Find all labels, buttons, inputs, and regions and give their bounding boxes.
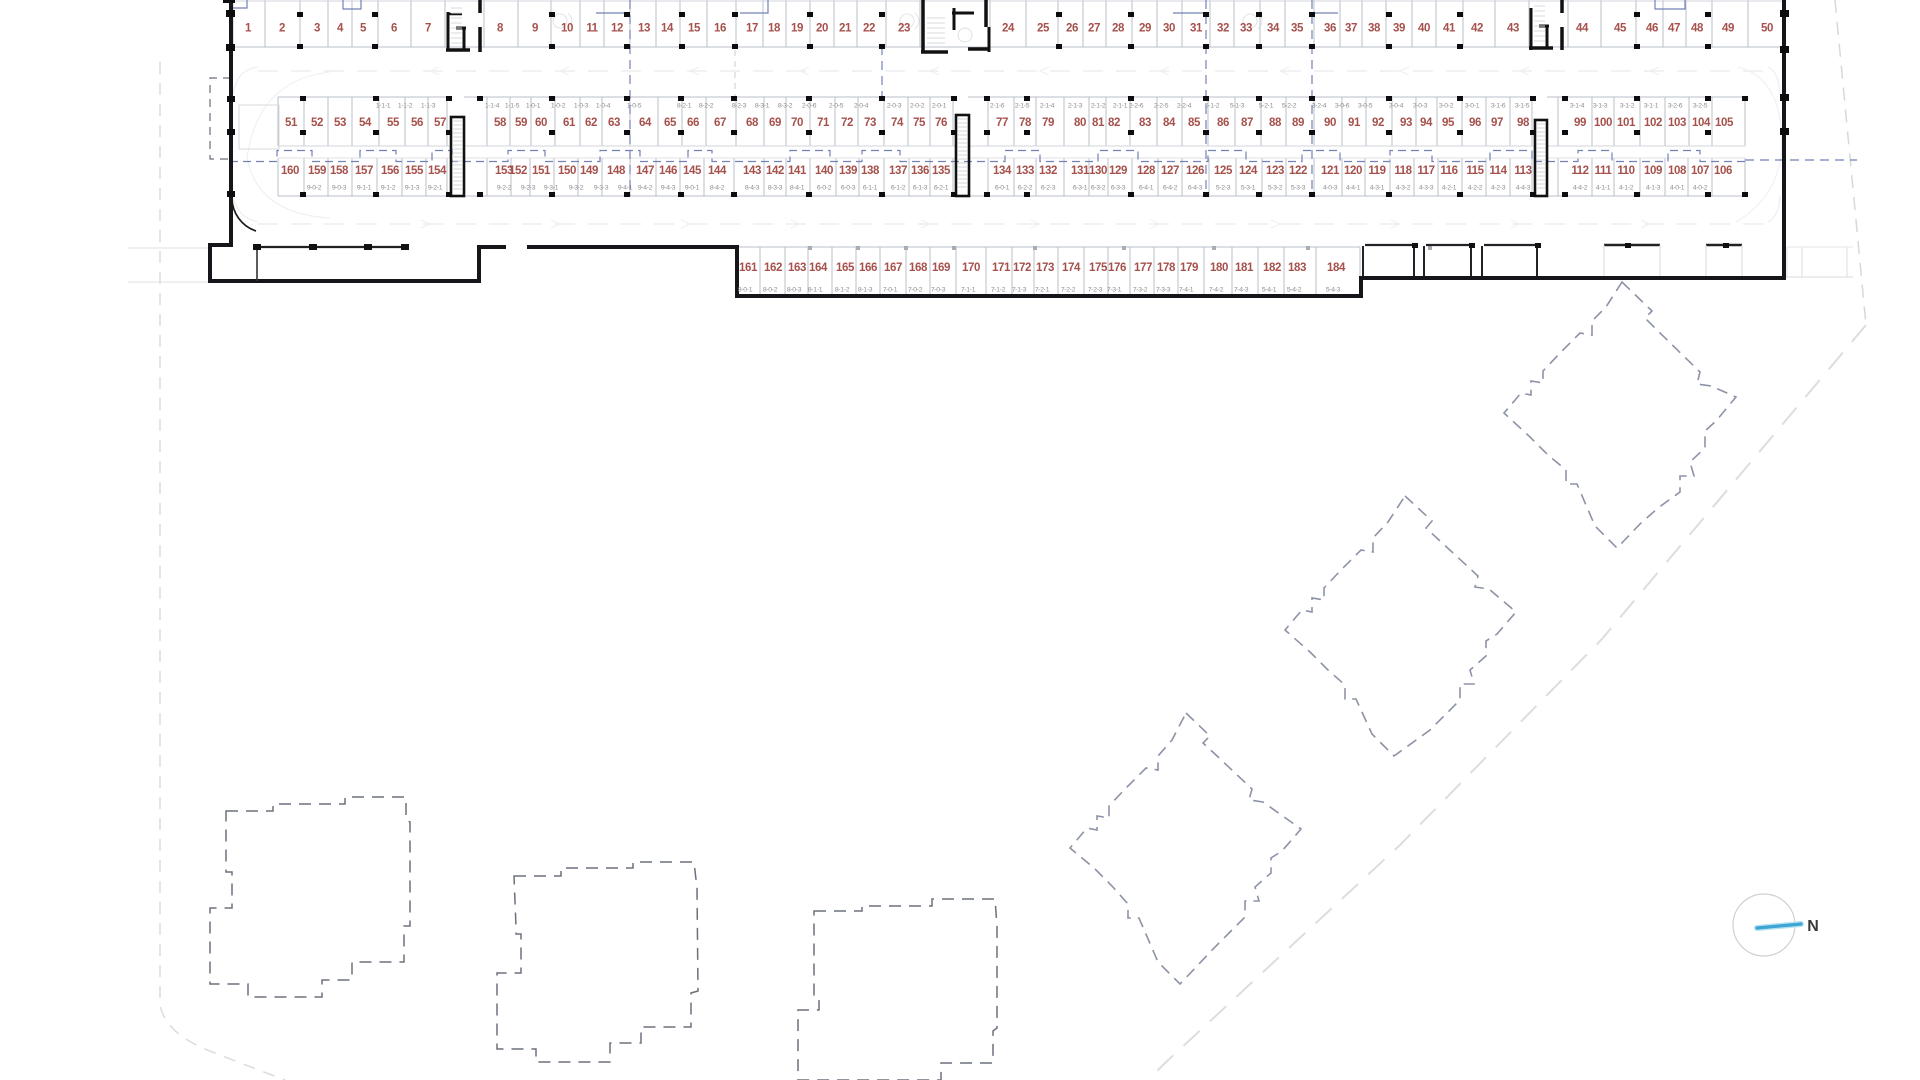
svg-text:2-0-4: 2-0-4 [854,103,869,110]
svg-text:122: 122 [1289,165,1307,177]
svg-text:2-1-1: 2-1-1 [1113,103,1128,110]
svg-text:172: 172 [1013,262,1031,274]
svg-text:91: 91 [1348,117,1361,129]
svg-text:23: 23 [898,23,910,35]
svg-text:181: 181 [1235,262,1254,274]
svg-text:2-2-6: 2-2-6 [1129,103,1144,110]
svg-text:3-2-4: 3-2-4 [1312,103,1327,110]
svg-text:3-1-6: 3-1-6 [1491,103,1506,110]
svg-text:6-1-3: 6-1-3 [913,185,928,192]
svg-text:8-2-3: 8-2-3 [732,103,747,110]
svg-text:10: 10 [561,23,573,35]
svg-text:8-3-1: 8-3-1 [755,103,770,110]
svg-text:115: 115 [1466,165,1484,177]
svg-text:183: 183 [1288,262,1306,274]
svg-text:145: 145 [683,165,702,177]
svg-text:8-0-1: 8-0-1 [738,287,753,294]
svg-text:1-1-4: 1-1-4 [485,103,500,110]
svg-text:108: 108 [1668,165,1687,177]
svg-text:57: 57 [434,117,446,129]
svg-text:4-3-3: 4-3-3 [1419,185,1434,192]
svg-text:9-0-2: 9-0-2 [307,185,322,192]
svg-text:147: 147 [636,165,654,177]
svg-text:6-0-3: 6-0-3 [841,185,856,192]
svg-text:N: N [1807,918,1819,935]
svg-text:120: 120 [1344,165,1362,177]
svg-text:170: 170 [962,262,980,274]
svg-text:50: 50 [1761,23,1773,35]
svg-text:158: 158 [330,165,349,177]
svg-text:6-2-1: 6-2-1 [934,185,949,192]
svg-text:8-3-3: 8-3-3 [768,185,783,192]
svg-text:131: 131 [1071,165,1090,177]
svg-text:37: 37 [1345,23,1357,35]
svg-text:9-3-1: 9-3-1 [544,185,559,192]
svg-text:103: 103 [1668,117,1686,129]
svg-text:6-3-1: 6-3-1 [1073,185,1088,192]
svg-text:67: 67 [714,117,726,129]
svg-text:94: 94 [1420,117,1433,129]
svg-text:19: 19 [791,23,803,35]
svg-text:144: 144 [708,165,727,177]
svg-text:3-0-4: 3-0-4 [1389,103,1404,110]
svg-text:3-1-4: 3-1-4 [1570,103,1585,110]
svg-text:160: 160 [281,165,299,177]
svg-text:4-1-1: 4-1-1 [1596,185,1611,192]
svg-text:1-1-1: 1-1-1 [376,103,391,110]
svg-text:28: 28 [1112,23,1125,35]
svg-text:173: 173 [1036,262,1054,274]
svg-text:3-0-2: 3-0-2 [1439,103,1454,110]
svg-text:2-0-3: 2-0-3 [887,103,902,110]
svg-text:73: 73 [864,117,876,129]
svg-text:7-3-1: 7-3-1 [1107,287,1122,294]
svg-text:69: 69 [769,117,781,129]
svg-text:7-1-2: 7-1-2 [991,287,1006,294]
svg-text:71: 71 [817,117,830,129]
svg-text:6-1-1: 6-1-1 [863,185,878,192]
svg-text:1-1-2: 1-1-2 [398,103,413,110]
svg-text:8-4-3: 8-4-3 [745,185,760,192]
svg-text:68: 68 [746,117,759,129]
svg-text:104: 104 [1692,117,1711,129]
svg-text:66: 66 [687,117,699,129]
svg-text:1-0-5: 1-0-5 [627,103,642,110]
svg-text:1-0-3: 1-0-3 [574,103,589,110]
svg-text:64: 64 [639,117,652,129]
svg-text:89: 89 [1292,117,1304,129]
svg-text:48: 48 [1691,23,1704,35]
svg-text:7-3-2: 7-3-2 [1133,287,1148,294]
svg-text:4-0-3: 4-0-3 [1323,185,1338,192]
svg-text:5-4-2: 5-4-2 [1287,287,1302,294]
svg-text:182: 182 [1263,262,1281,274]
svg-text:12: 12 [611,23,623,35]
svg-text:7-1-1: 7-1-1 [961,287,976,294]
svg-text:9-1-1: 9-1-1 [357,185,372,192]
svg-text:7: 7 [425,23,431,35]
svg-text:148: 148 [607,165,626,177]
svg-text:5-3-1: 5-3-1 [1241,185,1256,192]
svg-text:3-2-6: 3-2-6 [1668,103,1683,110]
svg-text:8-1-1: 8-1-1 [808,287,823,294]
svg-text:4-1-3: 4-1-3 [1646,185,1661,192]
svg-text:5-3-3: 5-3-3 [1291,185,1306,192]
svg-text:20: 20 [816,23,828,35]
svg-text:184: 184 [1327,262,1346,274]
svg-text:87: 87 [1241,117,1253,129]
svg-text:63: 63 [608,117,620,129]
svg-text:22: 22 [863,23,875,35]
svg-text:9-3-2: 9-3-2 [569,185,584,192]
svg-text:9: 9 [532,23,538,35]
svg-text:4-2-3: 4-2-3 [1491,185,1506,192]
svg-text:141: 141 [788,165,807,177]
svg-text:171: 171 [992,262,1011,274]
svg-text:111: 111 [1595,165,1613,177]
svg-text:3-0-3: 3-0-3 [1413,103,1428,110]
svg-text:5-4-3: 5-4-3 [1326,287,1341,294]
svg-text:140: 140 [815,165,833,177]
svg-text:167: 167 [884,262,902,274]
svg-text:7-3-3: 7-3-3 [1156,287,1171,294]
svg-text:8: 8 [497,23,504,35]
svg-text:174: 174 [1062,262,1081,274]
svg-text:4-2-1: 4-2-1 [1442,185,1457,192]
svg-text:146: 146 [659,165,677,177]
svg-text:86: 86 [1217,117,1229,129]
svg-text:26: 26 [1066,23,1078,35]
svg-text:4-2-2: 4-2-2 [1468,185,1483,192]
svg-text:1-1-3: 1-1-3 [421,103,436,110]
svg-text:3-0-6: 3-0-6 [1335,103,1350,110]
svg-text:133: 133 [1016,165,1034,177]
svg-text:132: 132 [1039,165,1057,177]
svg-text:4-3-1: 4-3-1 [1370,185,1385,192]
svg-text:53: 53 [334,117,346,129]
svg-text:7-2-2: 7-2-2 [1061,287,1076,294]
svg-text:138: 138 [861,165,880,177]
svg-text:116: 116 [1440,165,1457,177]
svg-text:142: 142 [766,165,784,177]
svg-text:2: 2 [279,23,285,35]
svg-text:2-0-1: 2-0-1 [932,103,947,110]
svg-text:59: 59 [515,117,527,129]
svg-text:5-3-2: 5-3-2 [1268,185,1283,192]
svg-text:49: 49 [1722,23,1734,35]
svg-text:119: 119 [1368,165,1385,177]
svg-text:136: 136 [911,165,929,177]
svg-text:55: 55 [387,117,400,129]
svg-text:126: 126 [1186,165,1204,177]
svg-text:40: 40 [1418,23,1430,35]
svg-text:164: 164 [809,262,828,274]
svg-text:6-4-3: 6-4-3 [1188,185,1203,192]
svg-text:9-4-3: 9-4-3 [661,185,676,192]
svg-text:25: 25 [1037,23,1050,35]
svg-text:125: 125 [1214,165,1233,177]
svg-text:121: 121 [1321,165,1340,177]
svg-text:3-1-2: 3-1-2 [1620,103,1635,110]
svg-text:2-1-4: 2-1-4 [1040,103,1055,110]
svg-text:82: 82 [1108,117,1120,129]
svg-text:9-4-1: 9-4-1 [618,185,633,192]
svg-text:46: 46 [1646,23,1658,35]
svg-text:80: 80 [1074,117,1086,129]
svg-text:100: 100 [1594,117,1612,129]
svg-text:137: 137 [889,165,907,177]
svg-text:9-0-3: 9-0-3 [332,185,347,192]
svg-text:58: 58 [494,117,507,129]
svg-text:8-0-3: 8-0-3 [787,287,802,294]
svg-text:65: 65 [664,117,677,129]
svg-text:2-2-5: 2-2-5 [1154,103,1169,110]
svg-text:29: 29 [1139,23,1151,35]
svg-text:9-1-3: 9-1-3 [405,185,420,192]
svg-text:32: 32 [1217,23,1229,35]
svg-text:130: 130 [1089,165,1107,177]
svg-text:7-4-2: 7-4-2 [1209,287,1224,294]
svg-text:21: 21 [839,23,852,35]
svg-text:38: 38 [1368,23,1381,35]
svg-text:4-0-1: 4-0-1 [1670,185,1685,192]
svg-text:7-0-2: 7-0-2 [908,287,923,294]
svg-text:107: 107 [1691,165,1709,177]
svg-text:4-3-2: 4-3-2 [1396,185,1411,192]
svg-text:113: 113 [1514,165,1531,177]
svg-text:135: 135 [932,165,951,177]
svg-text:9-4-2: 9-4-2 [638,185,653,192]
svg-text:62: 62 [585,117,597,129]
svg-text:6-3-3: 6-3-3 [1111,185,1126,192]
svg-text:52: 52 [311,117,323,129]
svg-text:1-0-1: 1-0-1 [526,103,541,110]
svg-text:8-4-2: 8-4-2 [710,185,725,192]
svg-text:24: 24 [1002,23,1015,35]
svg-text:4-0-2: 4-0-2 [1693,185,1708,192]
svg-text:9-2-1: 9-2-1 [428,185,443,192]
svg-text:33: 33 [1240,23,1252,35]
svg-text:1: 1 [245,23,252,35]
svg-text:51: 51 [285,117,298,129]
svg-text:101: 101 [1617,117,1636,129]
svg-text:179: 179 [1180,262,1198,274]
svg-text:92: 92 [1372,117,1384,129]
svg-text:1-0-2: 1-0-2 [551,103,566,110]
svg-text:4-4-1: 4-4-1 [1346,185,1361,192]
svg-text:1-1-5: 1-1-5 [505,103,520,110]
svg-text:114: 114 [1489,165,1507,177]
svg-text:6-0-1: 6-0-1 [995,185,1010,192]
svg-text:44: 44 [1576,23,1589,35]
svg-text:8-0-2: 8-0-2 [763,287,778,294]
svg-text:97: 97 [1491,117,1503,129]
svg-text:5-1-2: 5-1-2 [1205,103,1220,110]
svg-text:162: 162 [764,262,782,274]
svg-text:5-4-1: 5-4-1 [1262,287,1277,294]
svg-text:90: 90 [1324,117,1336,129]
svg-text:7-0-1: 7-0-1 [883,287,898,294]
svg-text:105: 105 [1715,117,1734,129]
svg-text:176: 176 [1108,262,1126,274]
svg-text:35: 35 [1291,23,1304,35]
svg-text:8-2-1: 8-2-1 [677,103,692,110]
svg-text:154: 154 [428,165,447,177]
svg-text:6-0-2: 6-0-2 [817,185,832,192]
svg-text:70: 70 [791,117,803,129]
svg-text:2-1-6: 2-1-6 [990,103,1005,110]
svg-text:99: 99 [1574,117,1586,129]
svg-text:4-4-2: 4-4-2 [1573,185,1588,192]
svg-text:127: 127 [1161,165,1179,177]
svg-text:165: 165 [836,262,855,274]
svg-text:13: 13 [638,23,650,35]
svg-text:6-1-2: 6-1-2 [891,185,906,192]
svg-text:3-1-3: 3-1-3 [1593,103,1608,110]
svg-text:4: 4 [337,23,344,35]
svg-text:31: 31 [1190,23,1203,35]
svg-text:106: 106 [1714,165,1732,177]
svg-text:128: 128 [1137,165,1156,177]
svg-text:9-3-3: 9-3-3 [594,185,609,192]
svg-text:76: 76 [935,117,947,129]
svg-text:8-2-2: 8-2-2 [699,103,714,110]
svg-text:6: 6 [391,23,397,35]
svg-text:118: 118 [1394,165,1412,177]
svg-text:16: 16 [714,23,726,35]
svg-text:61: 61 [563,117,576,129]
svg-text:166: 166 [859,262,877,274]
svg-text:151: 151 [532,165,551,177]
svg-text:139: 139 [839,165,857,177]
svg-text:5-2-2: 5-2-2 [1282,103,1297,110]
svg-text:54: 54 [359,117,372,129]
svg-text:78: 78 [1019,117,1032,129]
svg-text:129: 129 [1109,165,1127,177]
svg-text:85: 85 [1188,117,1201,129]
svg-text:98: 98 [1517,117,1530,129]
svg-text:5-2-1: 5-2-1 [1259,103,1274,110]
svg-text:84: 84 [1163,117,1176,129]
svg-text:27: 27 [1088,23,1100,35]
svg-text:123: 123 [1266,165,1284,177]
svg-text:9-2-3: 9-2-3 [521,185,536,192]
svg-text:168: 168 [909,262,928,274]
svg-text:6-3-2: 6-3-2 [1091,185,1106,192]
svg-text:149: 149 [580,165,598,177]
svg-text:7-2-1: 7-2-1 [1035,287,1050,294]
svg-text:152: 152 [509,165,527,177]
svg-text:9-1-2: 9-1-2 [381,185,396,192]
svg-text:2-0-6: 2-0-6 [802,103,817,110]
svg-text:42: 42 [1471,23,1483,35]
svg-text:175: 175 [1089,262,1108,274]
svg-text:8-1-2: 8-1-2 [835,287,850,294]
svg-text:2-0-2: 2-0-2 [910,103,925,110]
svg-text:178: 178 [1157,262,1176,274]
svg-text:7-2-3: 7-2-3 [1088,287,1103,294]
svg-text:2-0-5: 2-0-5 [829,103,844,110]
svg-text:9-0-1: 9-0-1 [685,185,700,192]
svg-text:163: 163 [788,262,806,274]
svg-text:72: 72 [841,117,853,129]
svg-text:4-1-2: 4-1-2 [1619,185,1634,192]
svg-text:1-0-4: 1-0-4 [596,103,611,110]
svg-text:161: 161 [739,262,758,274]
svg-text:155: 155 [405,165,424,177]
svg-text:95: 95 [1442,117,1455,129]
svg-text:6-4-2: 6-4-2 [1163,185,1178,192]
svg-text:17: 17 [746,23,758,35]
svg-text:6-2-2: 6-2-2 [1018,185,1033,192]
svg-text:7-4-3: 7-4-3 [1234,287,1249,294]
svg-text:134: 134 [993,165,1012,177]
svg-text:3-0-5: 3-0-5 [1358,103,1373,110]
svg-text:112: 112 [1571,165,1588,177]
svg-text:11: 11 [586,23,598,35]
svg-text:143: 143 [743,165,761,177]
svg-text:2-1-3: 2-1-3 [1068,103,1083,110]
svg-text:6-2-3: 6-2-3 [1041,185,1056,192]
svg-text:30: 30 [1163,23,1175,35]
svg-text:56: 56 [411,117,423,129]
svg-text:2-1-2: 2-1-2 [1091,103,1106,110]
svg-text:124: 124 [1239,165,1258,177]
svg-text:5: 5 [360,23,367,35]
svg-text:7-4-1: 7-4-1 [1179,287,1194,294]
svg-text:8-1-3: 8-1-3 [858,287,873,294]
svg-text:109: 109 [1644,165,1662,177]
svg-text:110: 110 [1617,165,1634,177]
svg-text:3-0-1: 3-0-1 [1465,103,1480,110]
svg-text:81: 81 [1092,117,1105,129]
svg-text:150: 150 [558,165,576,177]
svg-text:39: 39 [1393,23,1405,35]
svg-text:3-1-5: 3-1-5 [1515,103,1530,110]
svg-text:36: 36 [1324,23,1336,35]
svg-text:5-1-3: 5-1-3 [1230,103,1245,110]
svg-text:15: 15 [688,23,701,35]
svg-text:45: 45 [1614,23,1627,35]
svg-text:117: 117 [1417,165,1434,177]
svg-text:156: 156 [381,165,399,177]
svg-text:6-4-1: 6-4-1 [1139,185,1154,192]
svg-text:177: 177 [1134,262,1152,274]
svg-text:4-4-3: 4-4-3 [1516,185,1531,192]
svg-text:5-2-3: 5-2-3 [1216,185,1231,192]
svg-text:159: 159 [308,165,326,177]
svg-text:88: 88 [1269,117,1282,129]
svg-text:8-3-2: 8-3-2 [778,103,793,110]
svg-text:180: 180 [1210,262,1228,274]
svg-text:74: 74 [891,117,904,129]
svg-text:9-2-2: 9-2-2 [497,185,512,192]
svg-text:47: 47 [1668,23,1680,35]
svg-text:3-1-1: 3-1-1 [1644,103,1659,110]
svg-text:2-2-4: 2-2-4 [1177,103,1192,110]
svg-text:75: 75 [913,117,926,129]
svg-text:169: 169 [932,262,950,274]
svg-text:79: 79 [1042,117,1054,129]
svg-text:14: 14 [661,23,674,35]
svg-text:60: 60 [535,117,547,129]
svg-text:43: 43 [1507,23,1519,35]
svg-text:96: 96 [1469,117,1481,129]
svg-text:3-2-5: 3-2-5 [1693,103,1708,110]
svg-text:18: 18 [768,23,781,35]
svg-text:83: 83 [1139,117,1151,129]
svg-text:7-1-3: 7-1-3 [1012,287,1027,294]
